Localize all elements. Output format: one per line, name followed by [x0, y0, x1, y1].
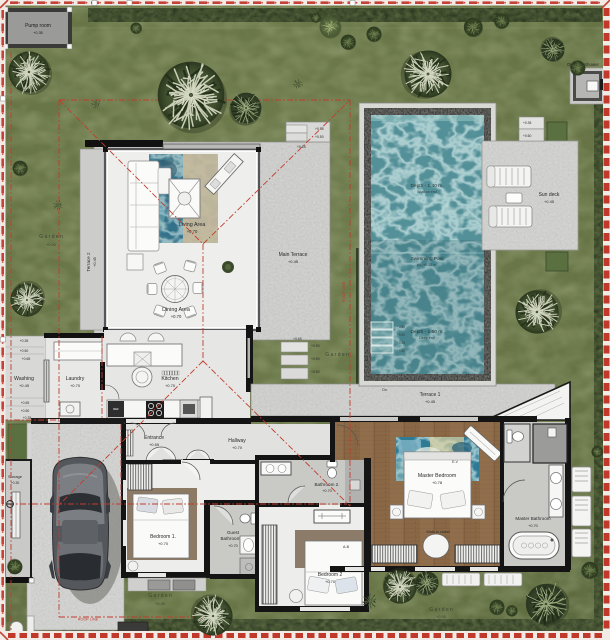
svg-text:Hallway: Hallway: [228, 438, 246, 444]
svg-text:+0.65: +0.65: [293, 337, 302, 341]
svg-text:Main Terrace: Main Terrace: [279, 252, 308, 258]
svg-text:Walk-in closet: Walk-in closet: [426, 530, 450, 534]
svg-text:G a r d e n: G a r d e n: [148, 593, 172, 599]
svg-text:+0.45: +0.45: [544, 199, 555, 204]
svg-text:+0.50: +0.50: [397, 333, 405, 337]
svg-text:Terrace 2: Terrace 2: [86, 252, 91, 272]
svg-text:+0.65: +0.65: [297, 145, 306, 149]
svg-text:+0.35: +0.35: [33, 31, 43, 35]
svg-text:+0.70: +0.70: [165, 383, 176, 388]
svg-text:+0.60: +0.60: [523, 134, 532, 138]
svg-text:+0.35: +0.35: [523, 121, 532, 125]
svg-text:+0.45: +0.45: [288, 259, 299, 264]
svg-text:Terrace 1: Terrace 1: [420, 392, 441, 398]
svg-text:Depth - 1.40 m.: Depth - 1.40 m.: [410, 183, 443, 189]
svg-text:Dining Area: Dining Area: [162, 307, 190, 313]
svg-text:Master Bathroom: Master Bathroom: [515, 516, 550, 521]
svg-text:+0.50: +0.50: [397, 341, 405, 345]
svg-text:+0.65: +0.65: [149, 442, 160, 447]
svg-text:+0.50: +0.50: [311, 357, 320, 361]
svg-text:Storage: Storage: [8, 474, 23, 479]
svg-text:+0.50: +0.50: [311, 344, 320, 348]
svg-text:+0.50: +0.50: [20, 349, 29, 353]
svg-text:+0.50: +0.50: [311, 370, 320, 374]
svg-text:Bedroom 2: Bedroom 2: [318, 572, 343, 578]
svg-text:+0.45: +0.45: [93, 257, 97, 267]
svg-text:+0.70: +0.70: [325, 579, 336, 584]
svg-text:Washing: Washing: [14, 376, 34, 382]
svg-text:+0.70: +0.70: [322, 489, 332, 493]
svg-text:Shallow end: Shallow end: [417, 190, 437, 194]
svg-text:+0.65: +0.65: [21, 401, 30, 405]
svg-text:Laundry: Laundry: [66, 376, 85, 382]
svg-text:Master Bedroom: Master Bedroom: [418, 473, 456, 479]
svg-text:+0.50: +0.50: [397, 325, 405, 329]
svg-text:+0.70: +0.70: [158, 541, 169, 546]
svg-text:+0.45: +0.45: [425, 399, 436, 404]
svg-text:+0.35: +0.35: [20, 339, 29, 343]
svg-text:+0.00: +0.00: [46, 243, 56, 247]
svg-text:+0.50: +0.50: [21, 409, 30, 413]
svg-text:+0.65: +0.65: [22, 357, 31, 361]
svg-text:REF: REF: [113, 407, 119, 411]
svg-text:+0.05: +0.05: [155, 602, 165, 606]
svg-text:Dn.: Dn.: [382, 388, 388, 392]
svg-text:Sun deck: Sun deck: [539, 192, 560, 198]
svg-text:+0.70: +0.70: [528, 524, 538, 528]
svg-text:Depth - 1.60 m.: Depth - 1.60 m.: [410, 329, 443, 335]
svg-text:Guest: Guest: [227, 530, 240, 535]
svg-text:WL:+0.22 m.: WL:+0.22 m.: [417, 263, 437, 267]
svg-text:+0.30: +0.30: [11, 481, 20, 485]
svg-text:Kitchen: Kitchen: [161, 376, 178, 382]
svg-text:+0.50: +0.50: [397, 349, 405, 353]
svg-text:+0.50: +0.50: [315, 135, 324, 139]
svg-text:Swimming Pool: Swimming Pool: [410, 256, 443, 262]
svg-text:G a r d e n: G a r d e n: [39, 234, 63, 240]
svg-text:A-B: A-B: [343, 545, 350, 549]
svg-text:+0.70: +0.70: [70, 383, 81, 388]
svg-text:E-V: E-V: [452, 460, 458, 464]
svg-text:+0.70: +0.70: [228, 544, 238, 548]
svg-text:Living Area: Living Area: [179, 222, 206, 228]
svg-text:ROOF LINE: ROOF LINE: [342, 281, 346, 302]
svg-text:G a r d e n: G a r d e n: [512, 13, 534, 18]
svg-text:+0.35: +0.35: [315, 127, 324, 131]
svg-text:Bedroom 1.: Bedroom 1.: [150, 534, 176, 540]
svg-text:G a r d e n: G a r d e n: [429, 607, 453, 613]
svg-text:+0.35: +0.35: [23, 416, 32, 420]
svg-text:+0.05: +0.05: [436, 615, 446, 619]
svg-text:+0.70: +0.70: [232, 445, 243, 450]
svg-text:G a r d e n: G a r d e n: [325, 352, 349, 358]
svg-text:+0.78: +0.78: [432, 480, 443, 485]
svg-text:Pump room: Pump room: [25, 23, 51, 29]
svg-text:ROOF LINE: ROOF LINE: [78, 618, 99, 622]
svg-text:+0.70: +0.70: [171, 314, 182, 319]
svg-text:+0.45: +0.45: [19, 383, 30, 388]
svg-text:Deep end: Deep end: [419, 336, 435, 340]
